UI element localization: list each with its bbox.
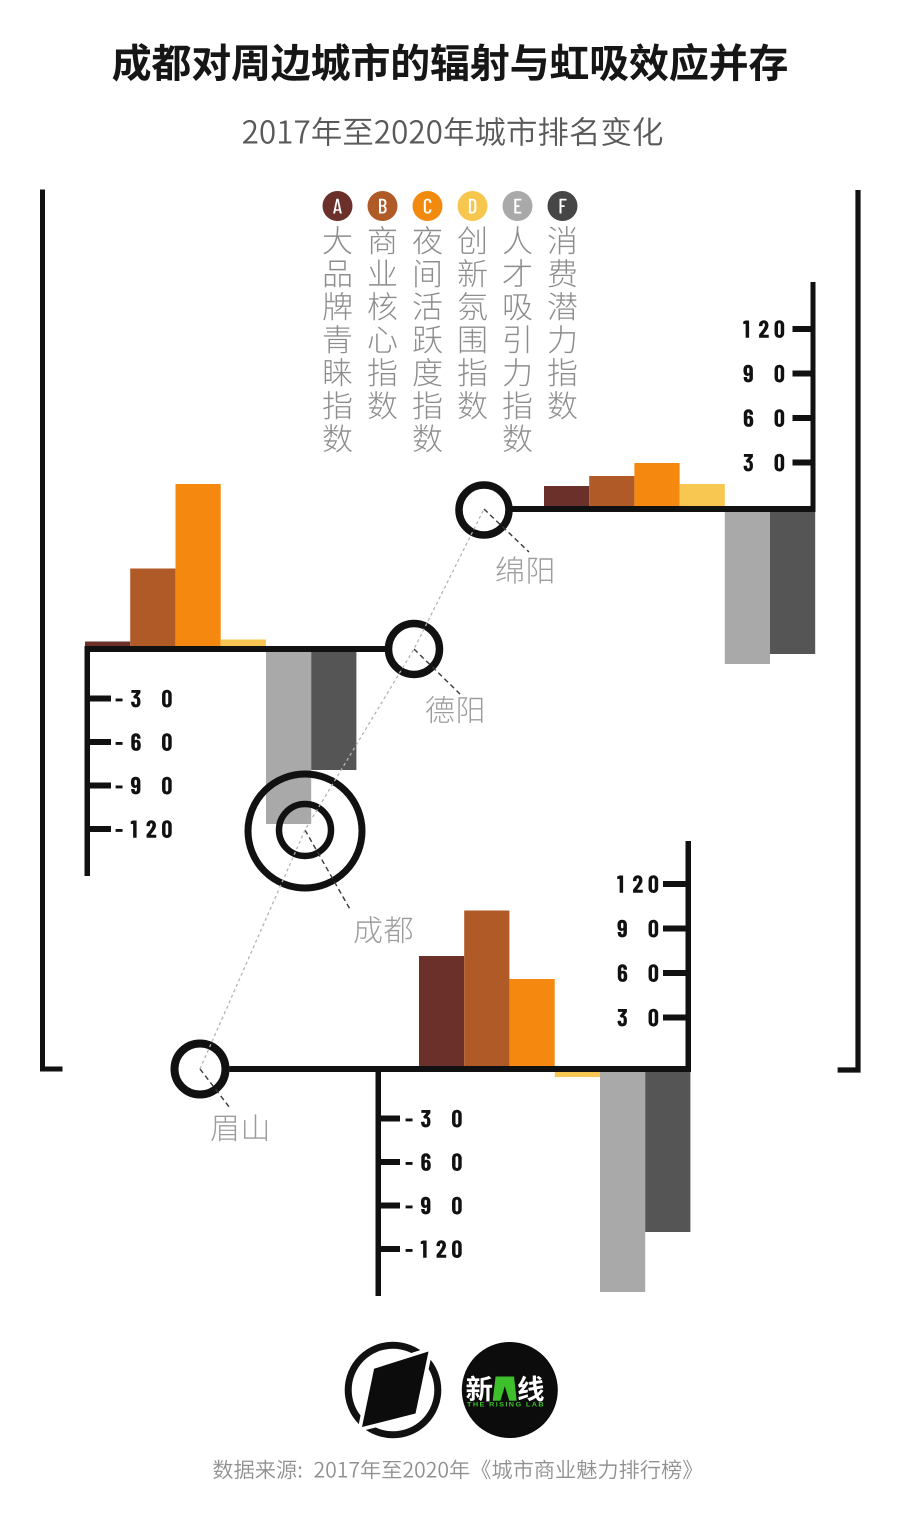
svg-text:THE RISING LAB: THE RISING LAB [467, 1402, 545, 1409]
